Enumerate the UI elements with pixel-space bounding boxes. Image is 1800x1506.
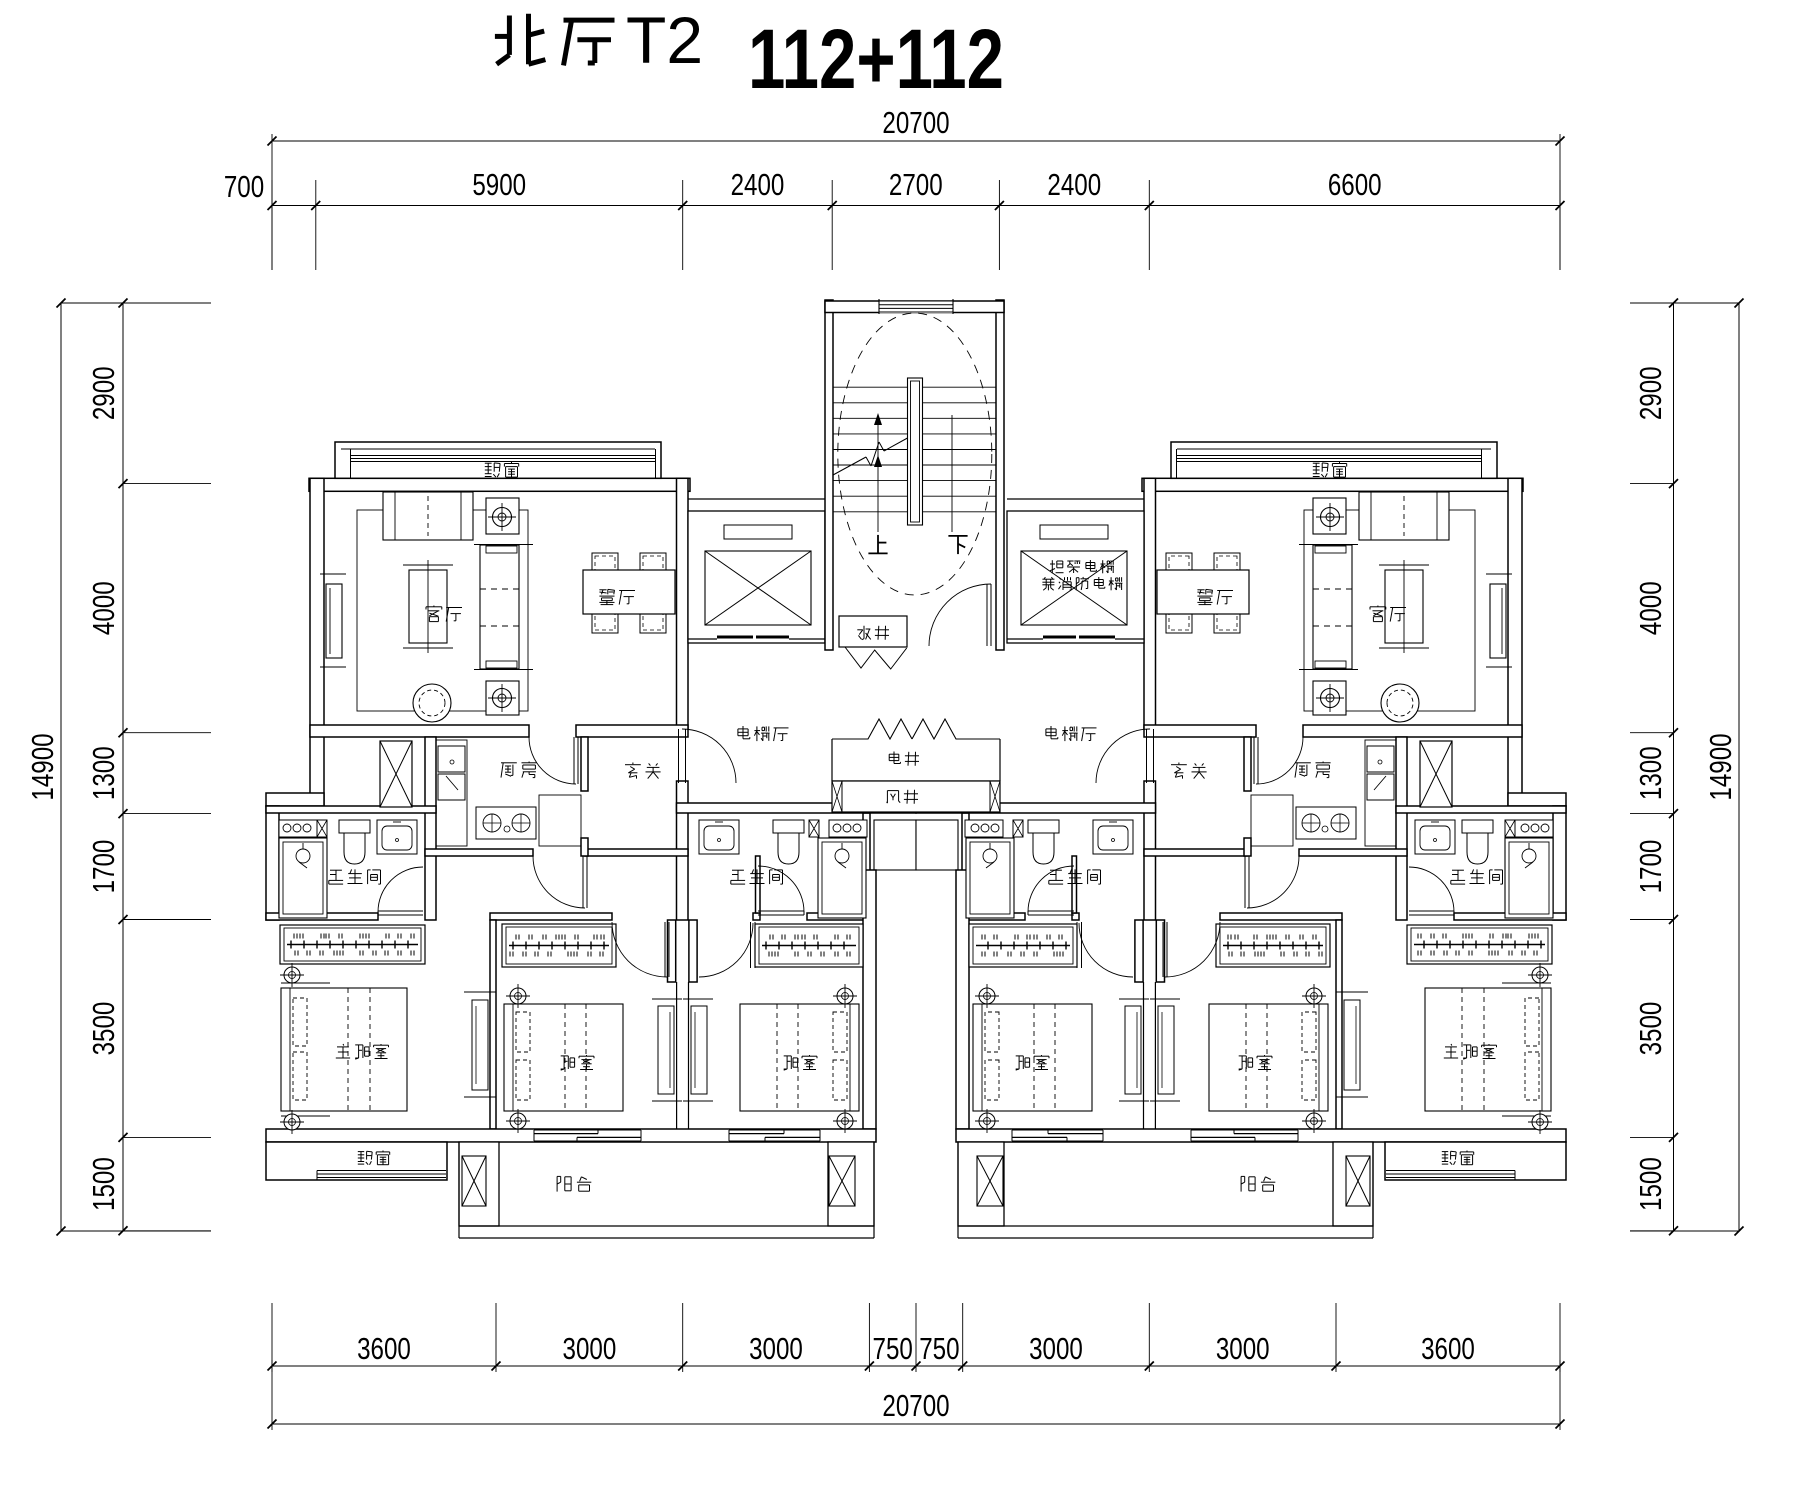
svg-text:1700: 1700 [86,840,121,894]
svg-text:2400: 2400 [731,167,785,202]
svg-text:750: 750 [919,1331,959,1366]
svg-text:3000: 3000 [1216,1331,1270,1366]
svg-text:20700: 20700 [882,105,949,140]
svg-text:14900: 14900 [25,733,60,800]
svg-text:3500: 3500 [86,1002,121,1056]
svg-text:5900: 5900 [472,167,526,202]
svg-text:14900: 14900 [1703,733,1738,800]
svg-text:20700: 20700 [882,1388,949,1423]
svg-text:3600: 3600 [357,1331,411,1366]
svg-text:112+112: 112+112 [748,13,1004,107]
svg-text:2900: 2900 [86,366,121,420]
svg-text:3600: 3600 [1421,1331,1475,1366]
svg-text:2900: 2900 [1633,366,1668,420]
svg-text:3000: 3000 [563,1331,617,1366]
svg-text:2400: 2400 [1047,167,1101,202]
svg-text:6600: 6600 [1328,167,1382,202]
svg-text:4000: 4000 [1633,581,1668,635]
svg-text:2700: 2700 [889,167,943,202]
svg-text:3000: 3000 [1029,1331,1083,1366]
svg-text:1300: 1300 [86,746,121,800]
svg-text:1300: 1300 [1633,746,1668,800]
svg-text:700: 700 [224,169,264,204]
svg-text:1700: 1700 [1633,840,1668,894]
svg-text:1500: 1500 [1633,1157,1668,1211]
svg-text:T2: T2 [626,3,703,77]
svg-text:4000: 4000 [86,581,121,635]
svg-text:750: 750 [873,1331,913,1366]
svg-text:3000: 3000 [749,1331,803,1366]
svg-text:3500: 3500 [1633,1002,1668,1056]
svg-text:1500: 1500 [86,1157,121,1211]
